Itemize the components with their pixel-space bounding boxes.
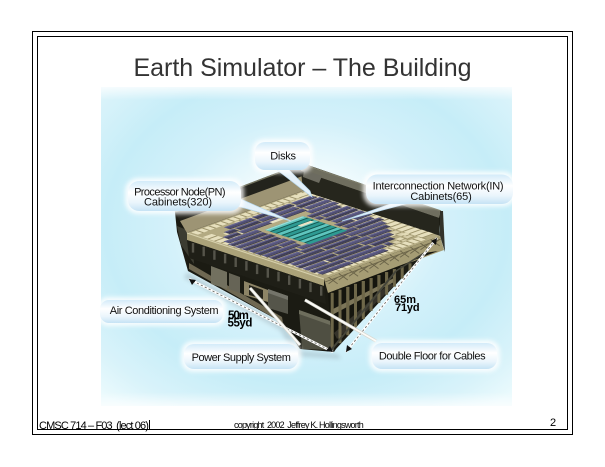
svg-text:Power Supply System: Power Supply System	[192, 352, 291, 364]
svg-text:Cabinets(65): Cabinets(65)	[410, 191, 471, 203]
svg-text:Double Floor for Cables: Double Floor for Cables	[379, 351, 486, 363]
svg-text:55yd: 55yd	[228, 318, 253, 330]
svg-text:Cabinets(320): Cabinets(320)	[144, 196, 212, 208]
svg-text:Disks: Disks	[270, 151, 296, 163]
svg-text:71yd: 71yd	[395, 302, 419, 314]
svg-text:Air Conditioning System: Air Conditioning System	[110, 305, 219, 317]
